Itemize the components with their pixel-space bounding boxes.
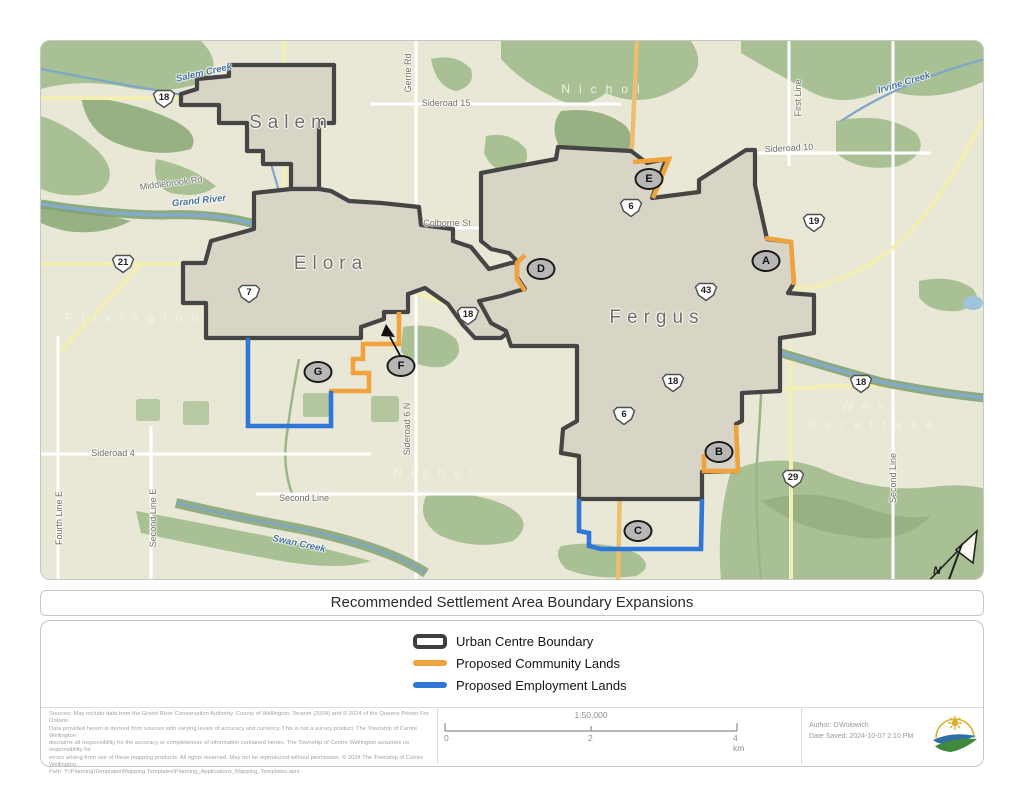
map-base-graphics <box>41 41 984 580</box>
highway-shield-19: 19 <box>802 213 826 233</box>
highway-shield-21: 21 <box>111 254 135 274</box>
community-lands-swatch <box>413 660 447 666</box>
author-block: Author: GWolowich Date Saved: 2024-10-07… <box>809 720 913 742</box>
highway-shield-7: 7 <box>237 284 261 304</box>
highway-shield-6-s: 6 <box>612 406 636 426</box>
map-footer-panel: Urban Centre Boundary Proposed Community… <box>40 620 984 767</box>
sources-line: Data provided herein is derived from sou… <box>49 726 433 741</box>
employment-lands-swatch <box>413 682 447 688</box>
page-title: Recommended Settlement Area Boundary Exp… <box>41 591 983 615</box>
sources-line: Sources: May include data from the Grand… <box>49 711 433 726</box>
expansion-marker-d: D <box>527 258 556 280</box>
legend-label: Urban Centre Boundary <box>456 634 593 649</box>
expansion-marker-b: B <box>705 441 734 463</box>
expansion-marker-f: F <box>387 355 416 377</box>
scale-tick-4km: 4 km <box>733 733 744 753</box>
expansion-marker-a: A <box>752 250 781 272</box>
sources-line: Path: Y:\Planning\Templates\Mapping Temp… <box>49 769 433 776</box>
highway-shield-6-n: 6 <box>619 198 643 218</box>
legend-label: Proposed Employment Lands <box>456 678 627 693</box>
legend-item-community-lands: Proposed Community Lands <box>413 655 620 671</box>
footer-divider <box>41 707 983 708</box>
sources-line: errors arising from use of these mapping… <box>49 755 433 770</box>
date-saved: Date Saved: 2024-10-07 2:10 PM <box>809 731 913 742</box>
map-canvas: Salem Elora Fergus Pilkington Nichol Nic… <box>40 40 984 580</box>
author-name: Author: GWolowich <box>809 720 913 731</box>
centre-wellington-logo <box>929 711 979 757</box>
scale-bar-graphic <box>444 721 744 733</box>
map-title-bar: Recommended Settlement Area Boundary Exp… <box>40 590 984 616</box>
highway-shield-18-s: 18 <box>661 373 685 393</box>
scale-bar: 1:50,000 0 2 4 km <box>444 710 754 743</box>
scale-tick-0: 0 <box>444 733 449 743</box>
highway-shield-18-nw: 18 <box>152 89 176 109</box>
urban-boundary-swatch <box>413 634 447 649</box>
sources-disclaimer: Sources: May include data from the Grand… <box>49 711 433 777</box>
highway-shield-29: 29 <box>781 469 805 489</box>
highway-shield-43: 43 <box>694 282 718 302</box>
highway-shield-18-c: 18 <box>456 306 480 326</box>
expansion-marker-c: C <box>624 520 653 542</box>
footer-divider-vertical-1 <box>437 707 438 764</box>
scale-ratio: 1:50,000 <box>444 710 738 720</box>
sources-line: disclaims all responsibility for the acc… <box>49 740 433 755</box>
expansion-marker-e: E <box>635 168 664 190</box>
legend-item-employment-lands: Proposed Employment Lands <box>413 677 627 693</box>
expansion-marker-g: G <box>304 361 333 383</box>
legend-label: Proposed Community Lands <box>456 656 620 671</box>
scale-tick-2: 2 <box>588 733 593 743</box>
footer-divider-vertical-2 <box>801 707 802 764</box>
highway-shield-18-e: 18 <box>849 374 873 394</box>
legend-item-urban-boundary: Urban Centre Boundary <box>413 633 593 649</box>
